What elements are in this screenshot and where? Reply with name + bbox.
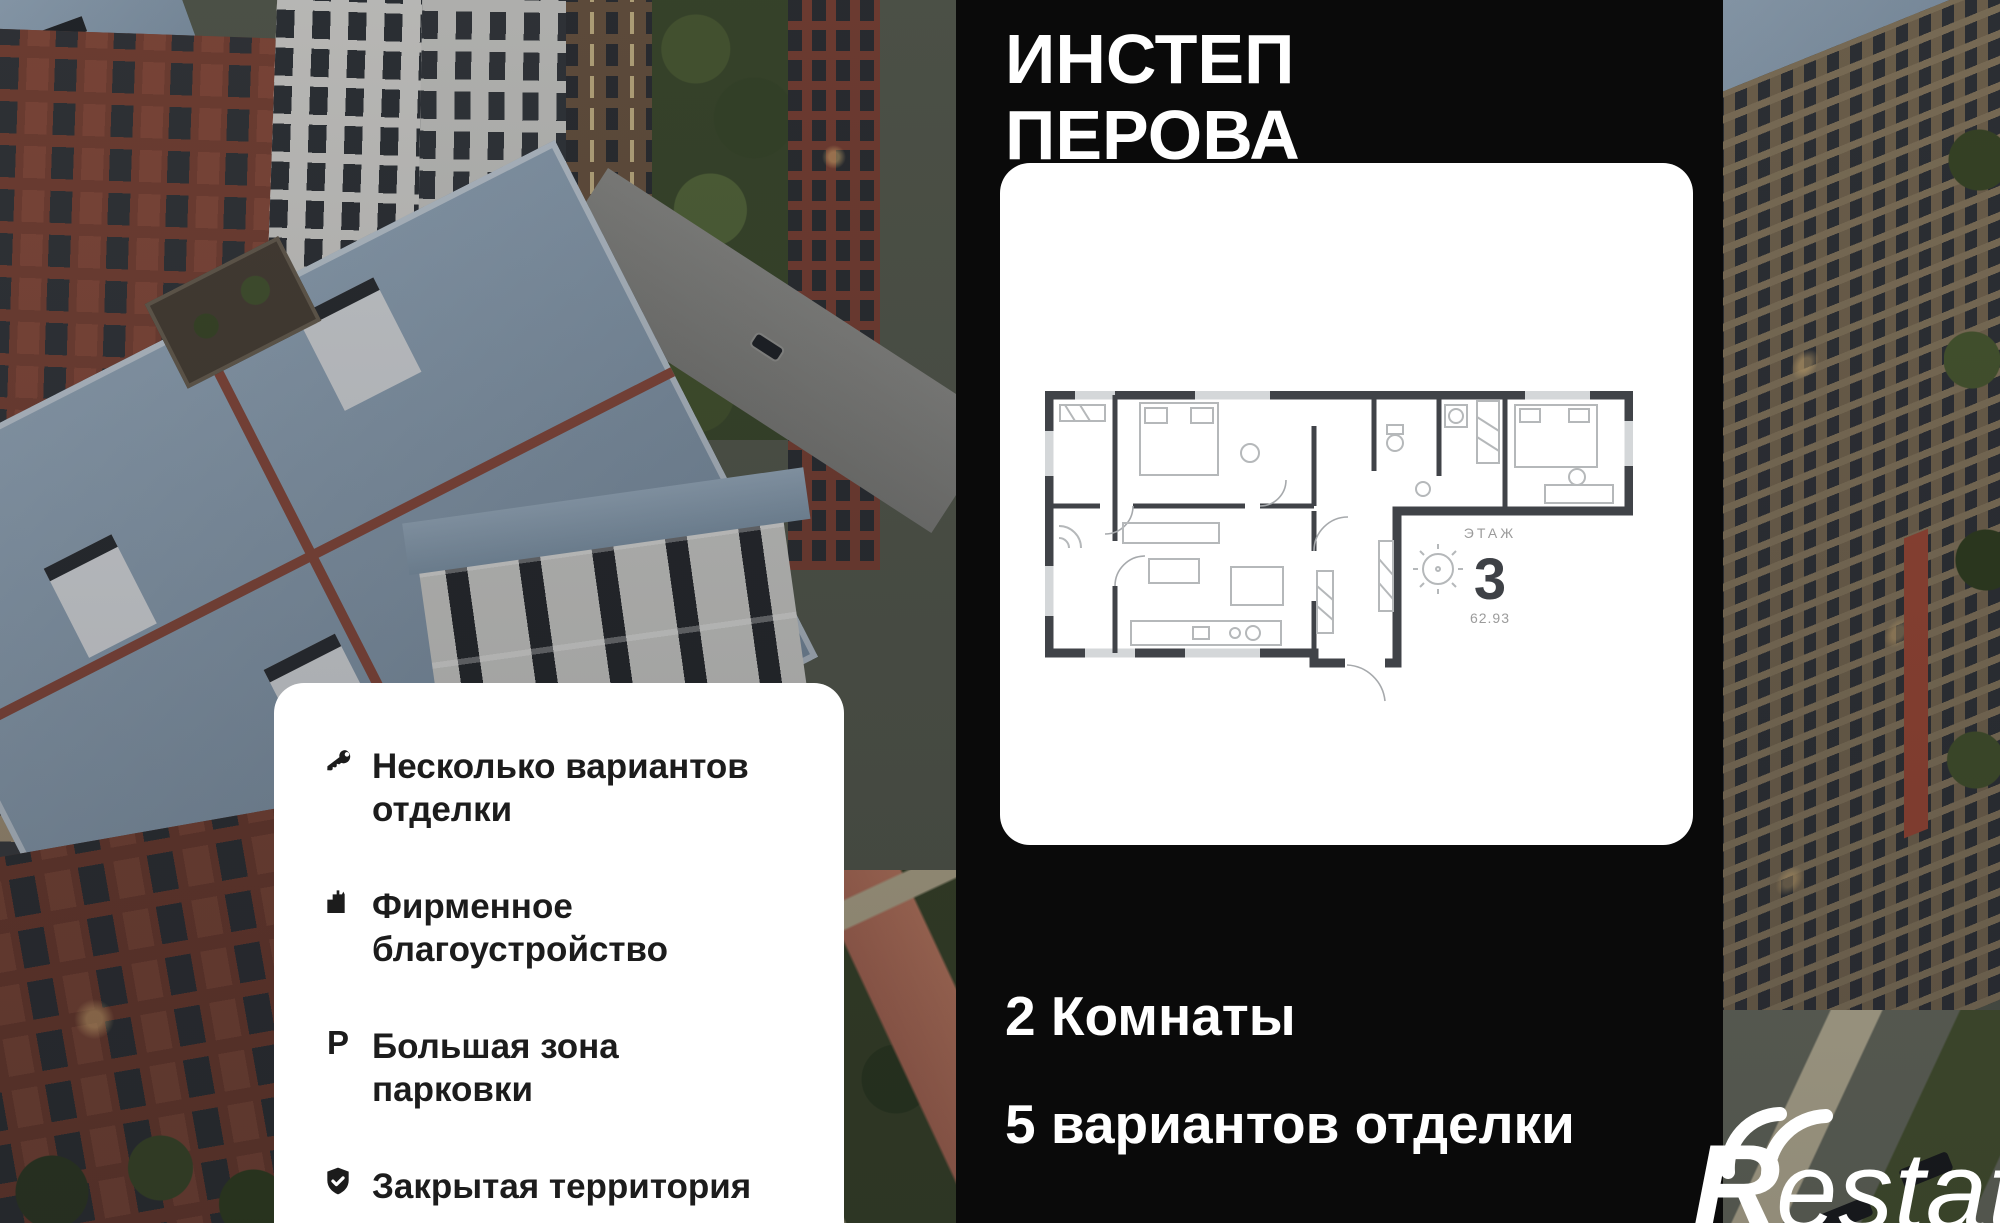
logo-letter-r: R [1692,1119,1780,1223]
feature-label: Фирменное благоустройство [372,885,782,971]
building-icon [320,885,356,921]
floor-number: 3 [1474,547,1506,612]
apartment-area: 62,93м2 [1005,1206,1482,1223]
feature-label: Несколько вариантов отделки [372,745,782,831]
area-superscript: 2 [1447,1215,1481,1223]
area-value: 62,93 [1005,1208,1325,1223]
floor-plan-drawing: ЭТАЖ 3 62.93 [1045,391,1633,711]
finishing-options: 5 вариантов отделки [1005,1092,1575,1156]
rooms-count: 2 Комнаты [1005,984,1296,1048]
key-icon [320,745,356,781]
feature-item-finishing: Несколько вариантов отделки [320,745,806,831]
restate-logo-text: Restate [1692,1126,2000,1223]
feature-label: Закрытая территория [372,1165,751,1208]
parking-icon: Р [320,1025,356,1061]
logo-rest: estate [1776,1130,2000,1223]
feature-item-security: Закрытая территория [320,1165,806,1208]
features-card: Несколько вариантов отделки Фирменное бл… [274,683,844,1223]
complex-title-line2: ПЕРОВА [1005,97,1300,173]
floor-plan-card: ЭТАЖ 3 62.93 [1000,163,1693,845]
feature-item-parking: Р Большая зона парковки [320,1025,806,1111]
shield-check-icon [320,1165,356,1201]
promo-banner: Несколько вариантов отделки Фирменное бл… [0,0,2000,1223]
listing-panel: ИНСТЕП ПЕРОВА [956,0,1723,1223]
complex-title: ИНСТЕП ПЕРОВА [1005,21,1300,173]
complex-title-line1: ИНСТЕП [1005,21,1300,97]
area-unit: м [1351,1208,1447,1223]
plan-area: 62.93 [1470,610,1510,626]
floor-label: ЭТАЖ [1464,525,1516,541]
restate-logo: Restate [1692,1100,2000,1223]
feature-label: Большая зона парковки [372,1025,782,1111]
feature-item-landscaping: Фирменное благоустройство [320,885,806,971]
